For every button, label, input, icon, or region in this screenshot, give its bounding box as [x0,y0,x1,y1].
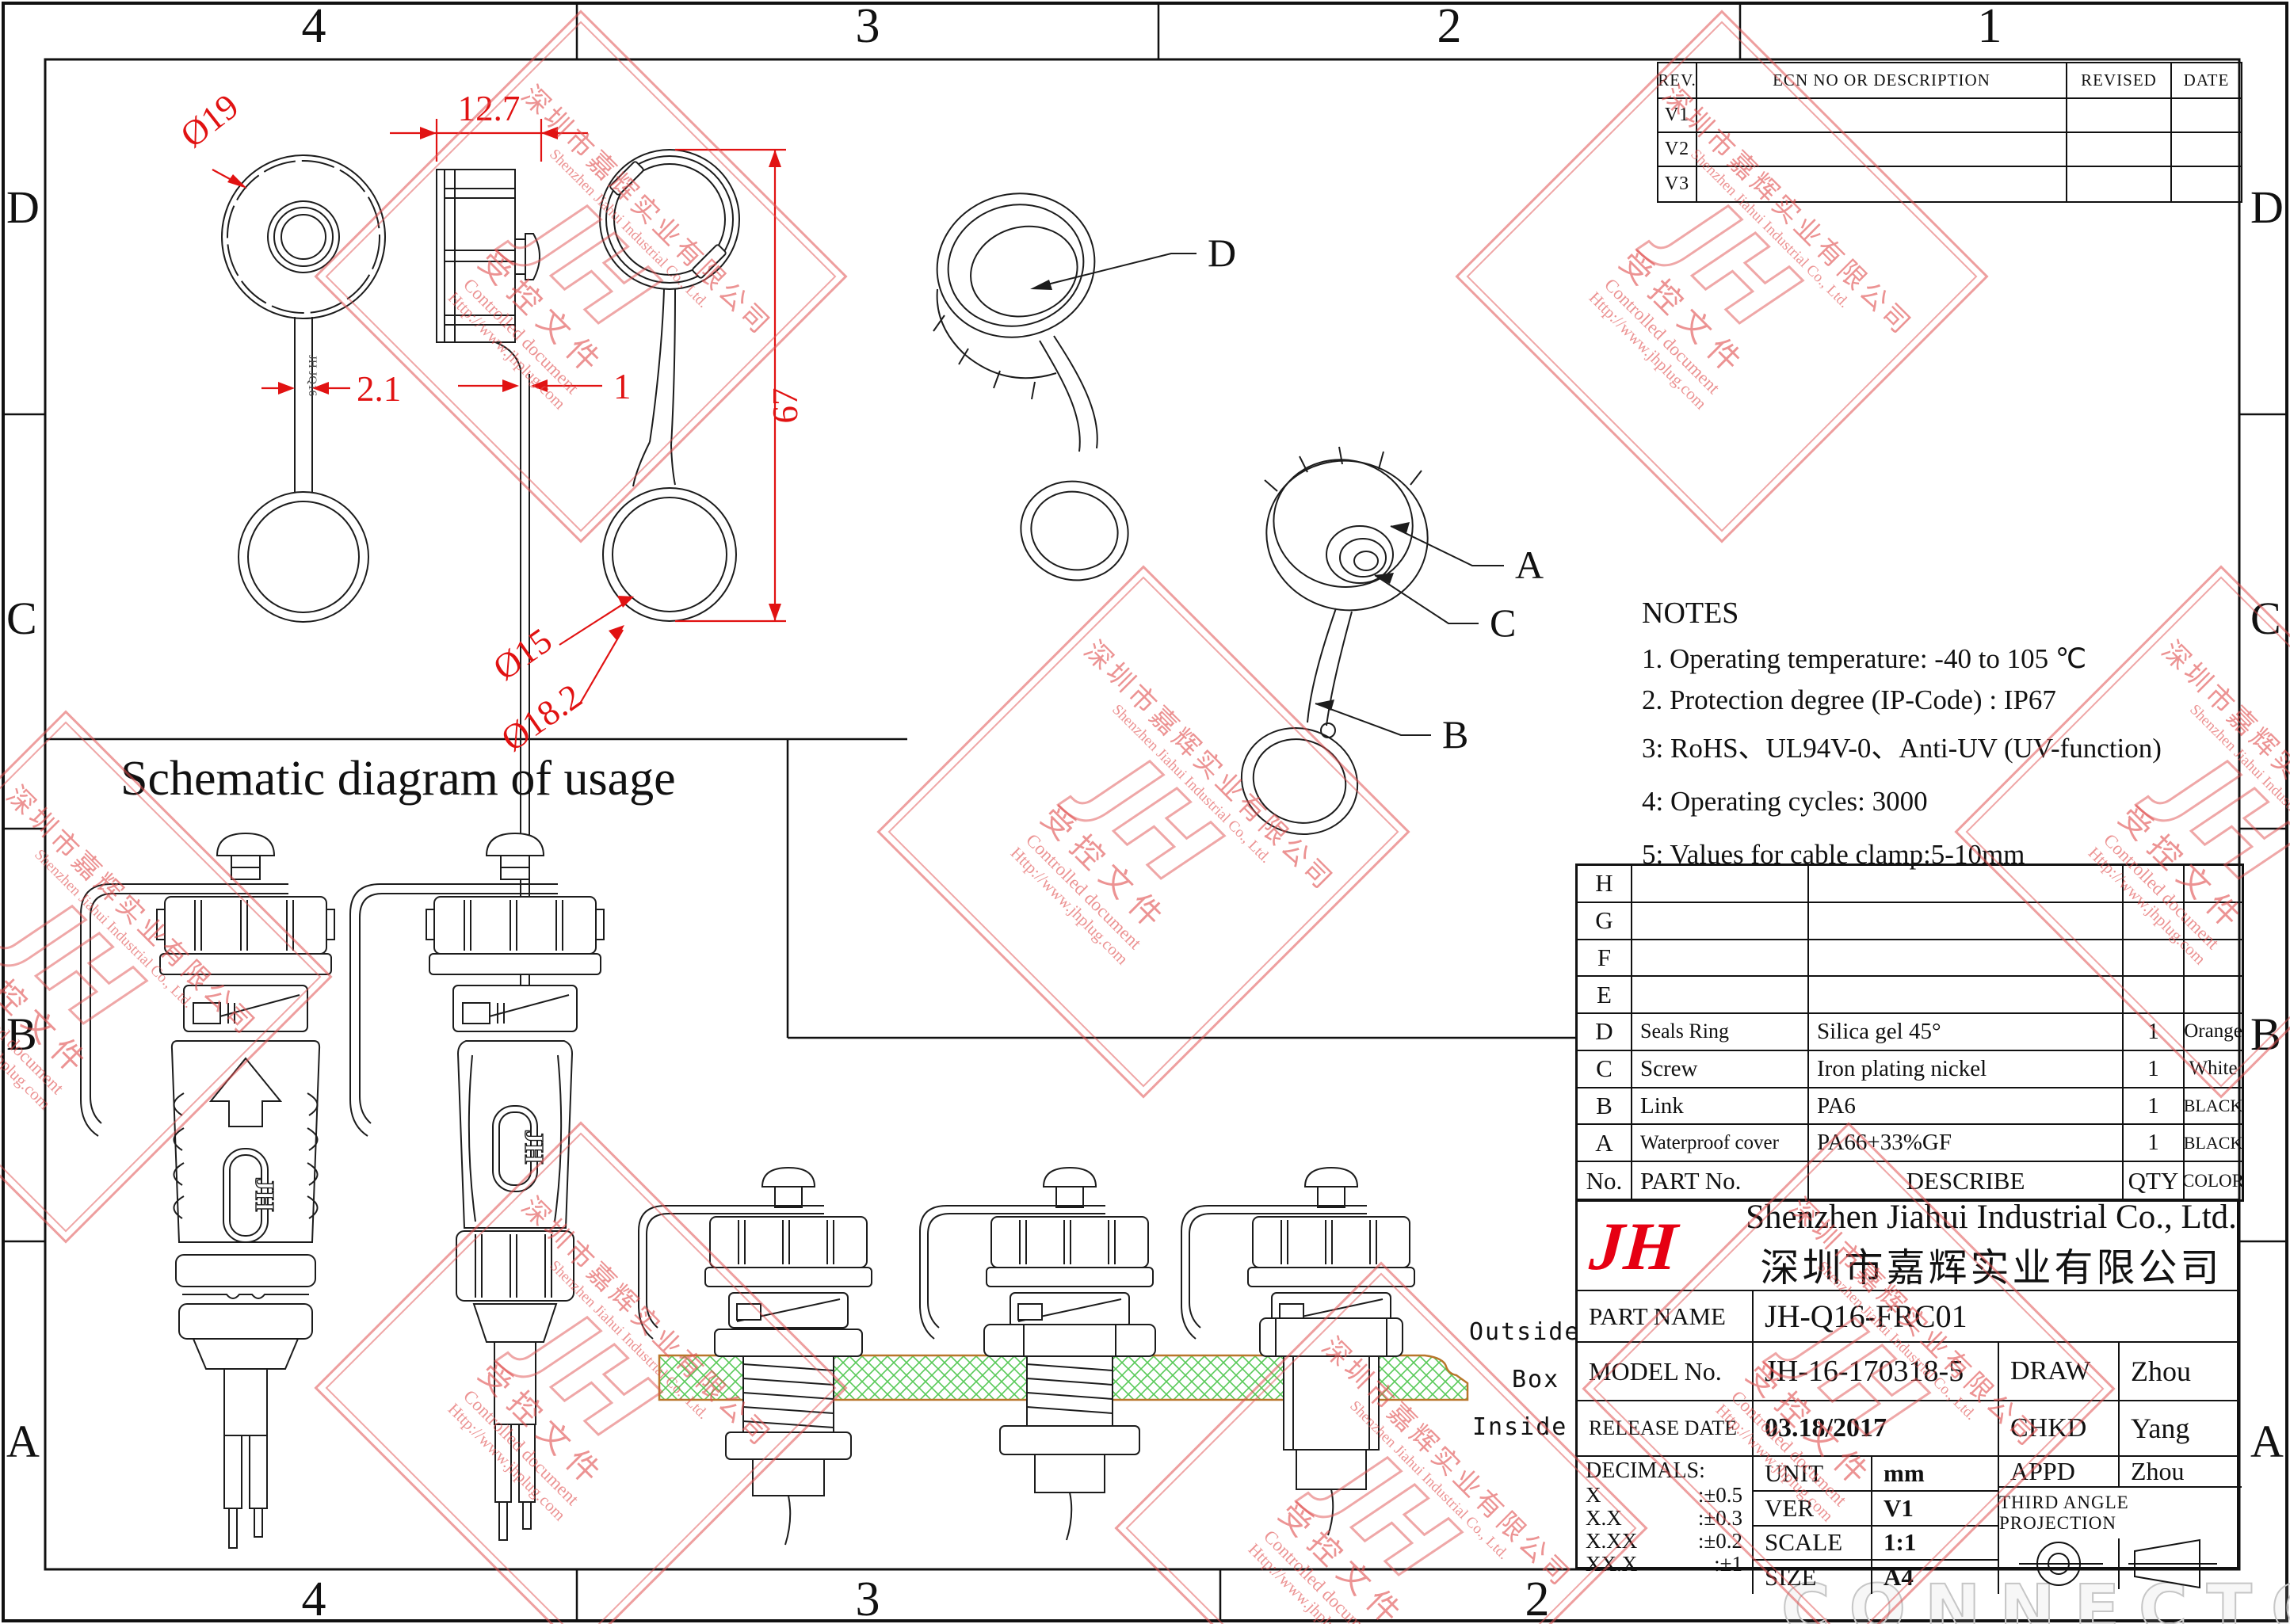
bom-row-describe: Silica gel 45° [1809,1014,2124,1051]
rev-cell [2067,133,2172,167]
bom-row-describe: PA6 [1809,1088,2124,1126]
release-date-label: RELEASE DATE [1578,1401,1754,1455]
dim-dia18-2: Ø18.2 [494,676,589,759]
bom-row-describe: Iron plating nickel [1809,1051,2124,1088]
drawing-sheet: JH JQ16 [0,0,2290,1624]
bom-row-qty: 1 [2124,1125,2185,1162]
dim-dia19: Ø19 [173,86,246,155]
bom-row-part: Waterproof cover [1632,1125,1809,1162]
jh-logo-text: JH [1586,1209,1682,1282]
rev-cell [1697,99,2067,133]
rev-cell [2067,99,2172,133]
appd-label: APPD [1999,1457,2120,1486]
third-angle-projection-icon [2009,1534,2231,1594]
callout-b-label: B [1442,712,1468,757]
dim-12-7: 12.7 [458,89,521,128]
bom-row-qty: 1 [2124,1051,2185,1088]
zone-left-b: B [6,1012,37,1058]
unit-label: UNIT [1754,1457,1871,1492]
panel-connector-cap [639,1168,872,1339]
part-name-label: PART NAME [1578,1291,1754,1341]
appd-value: Zhou [2120,1457,2242,1486]
decimals-k: X [1586,1484,1601,1507]
bom-footer-qty: QTY [2124,1162,2185,1199]
note-item: 2. Protection degree (IP-Code) : IP67 [1642,684,2290,716]
scale-label: SCALE [1754,1527,1871,1561]
zone-right-b: B [2250,1012,2281,1058]
decimals-k: X.X [1586,1507,1622,1530]
zone-left-d: D [6,185,40,231]
bom-cell [1809,866,2124,903]
zone-right-a: A [2250,1419,2284,1465]
decimals-v: :±1 [1714,1553,1742,1576]
panel-connector-3 [1260,1318,1403,1535]
decimals-k: X.XX [1586,1530,1637,1553]
projection-label: THIRD ANGLE PROJECTION [1999,1492,2242,1534]
scale-value: 1:1 [1872,1527,1998,1561]
bom-cell [1809,903,2124,940]
bom-row-no: A [1578,1125,1632,1162]
bom-cell [2185,940,2242,978]
rev-row-v3: V3 [1658,167,1697,201]
zone-bottom-2: 2 [1525,1575,1550,1624]
note-item: 4: Operating cycles: 3000 [1642,786,2290,818]
zone-top-1: 1 [1978,2,2002,51]
bom-cell [1632,977,1809,1014]
size-value: A4 [1872,1561,1998,1594]
bom-cell [2124,940,2185,978]
notes-block: NOTES 1. Operating temperature: -40 to 1… [1642,596,2290,871]
cable-connector-right-body [456,1041,574,1540]
iso-view-cap-back [1227,446,1441,850]
bom-cell [1809,977,2124,1014]
zone-top-4: 4 [302,2,326,51]
bom-row-describe: PA66+33%GF [1809,1125,2124,1162]
decimals-v: :±0.5 [1698,1484,1742,1507]
bom-footer-part: PART No. [1632,1162,1809,1199]
note-item: 3: RoHS、UL94V-0、Anti-UV (UV-function) [1642,726,2290,766]
decimals-k: XX.X [1586,1553,1637,1576]
bom-row-part: Seals Ring [1632,1014,1809,1051]
company-banner: JH Shenzhen Jiahui Industrial Co., Ltd. … [1578,1201,2237,1291]
rev-row-v2: V2 [1658,133,1697,167]
bom-cell [1632,940,1809,978]
draw-value: Zhou [2120,1343,2242,1400]
bom-row-qty: 1 [2124,1014,2185,1051]
bom-row-part: Link [1632,1088,1809,1126]
bom-cell [2124,977,2185,1014]
cable-connector-left-body [172,1041,319,1548]
bom-empty-label: E [1578,977,1632,1014]
size-label: SIZE [1754,1561,1871,1594]
chkd-label: CHKD [1999,1401,2120,1455]
rev-header-ecn: ECN NO OR DESCRIPTION [1697,63,2067,99]
callout-a-label: A [1515,543,1544,587]
company-name-cn: 深圳市嘉辉实业有限公司 [1760,1237,2222,1293]
bom-cell [1632,903,1809,940]
dim-2-1: 2.1 [357,369,401,409]
inside-label: Inside [1472,1413,1567,1441]
bom-empty-label: F [1578,940,1632,978]
zone-left-c: C [6,596,37,642]
note-item: 1. Operating temperature: -40 to 105 ℃ [1642,643,2290,675]
rev-row-v1: V1 [1658,99,1697,133]
rev-cell [2172,167,2241,201]
box-label: Box [1512,1366,1559,1393]
outside-label: Outside [1469,1318,1580,1346]
usage-title: Schematic diagram of usage [120,751,676,807]
callout-d-label: D [1208,231,1236,275]
bom-row-color: White [2185,1051,2242,1088]
bom-row-qty: 1 [2124,1088,2185,1126]
part-name-value: JH-Q16-FRC01 [1754,1291,2242,1341]
bom-row-no: C [1578,1051,1632,1088]
decimals-label: DECIMALS: [1586,1458,1742,1484]
model-label: MODEL No. [1578,1343,1754,1400]
jh-logo-icon: JH [1586,1209,1737,1282]
rev-cell [2172,133,2241,167]
spec-values: mm V1 1:1 A4 [1872,1457,1999,1594]
bom-cell [2124,903,2185,940]
unit-value: mm [1872,1457,1998,1492]
callout-c-label: C [1490,600,1516,645]
zone-top-3: 3 [856,2,880,51]
decimals-v: :±0.2 [1698,1530,1742,1553]
bom-row-color: Orange [2185,1014,2242,1051]
bom-empty-label: G [1578,903,1632,940]
bom-row-no: D [1578,1014,1632,1051]
bom-cell [2185,903,2242,940]
revision-table: REV. ECN NO OR DESCRIPTION REVISED DATE … [1657,62,2242,203]
spec-labels: UNIT VER SCALE SIZE [1754,1457,1872,1594]
strap-marking-text: JH JQ16 [306,355,319,397]
title-block: JH Shenzhen Jiahui Industrial Co., Ltd. … [1575,1199,2239,1569]
rev-cell [1697,133,2067,167]
decimals-cell: DECIMALS: X:±0.5 X.X:±0.3 X.XX:±0.2 XX.X… [1578,1457,1754,1594]
decimals-v: :±0.3 [1698,1507,1742,1530]
rev-header-revised: REVISED [2067,63,2172,99]
dim-dia15: Ø15 [486,620,559,688]
ver-value: V1 [1872,1492,1998,1527]
bom-cell [2124,866,2185,903]
panel-connector-2 [984,1325,1155,1540]
bom-cell [1809,940,2124,978]
bom-row-no: B [1578,1088,1632,1126]
bom-footer-no: No. [1578,1162,1632,1199]
model-value: JH-16-170318-5 [1754,1343,1999,1400]
rev-cell [2172,99,2241,133]
draw-label: DRAW [1999,1343,2120,1400]
rev-header-rev: REV. [1658,63,1697,99]
rev-header-date: DATE [2172,63,2241,99]
rev-cell [1697,167,2067,201]
dim-1: 1 [613,367,632,406]
zone-right-d: D [2250,185,2284,231]
zone-left-a: A [6,1419,40,1465]
bom-row-color: BLACK [2185,1125,2242,1162]
ver-label: VER [1754,1492,1871,1527]
bom-footer-describe: DESCRIBE [1809,1162,2124,1199]
zone-bottom-3: 3 [856,1575,880,1624]
bom-footer-color: COLOR [2185,1162,2242,1199]
bom-cell [1632,866,1809,903]
bom-empty-label: H [1578,866,1632,903]
bom-table: H G F E D Seals Ring Silica gel 45° 1 Or… [1575,863,2244,1202]
chkd-value: Yang [2120,1401,2242,1455]
bom-cell [2185,866,2242,903]
bom-row-color: BLACK [2185,1088,2242,1126]
jh-badge-right: JH [519,1130,548,1164]
bom-row-part: Screw [1632,1051,1809,1088]
company-name-en: Shenzhen Jiahui Industrial Co., Ltd. [1746,1198,2237,1237]
dim-67: 67 [765,388,805,424]
zone-top-2: 2 [1437,2,1462,51]
iso-view-cap-open [921,176,1139,592]
jh-badge-left: JH [250,1177,279,1211]
release-date-value: 03.18/2017 [1754,1401,1999,1455]
bom-cell [2185,977,2242,1014]
zone-bottom-4: 4 [302,1575,326,1624]
notes-title: NOTES [1642,596,2290,631]
projection-cell: THIRD ANGLE PROJECTION [1999,1488,2242,1594]
rev-cell [2067,167,2172,201]
company-logo: JH [1578,1201,1746,1290]
